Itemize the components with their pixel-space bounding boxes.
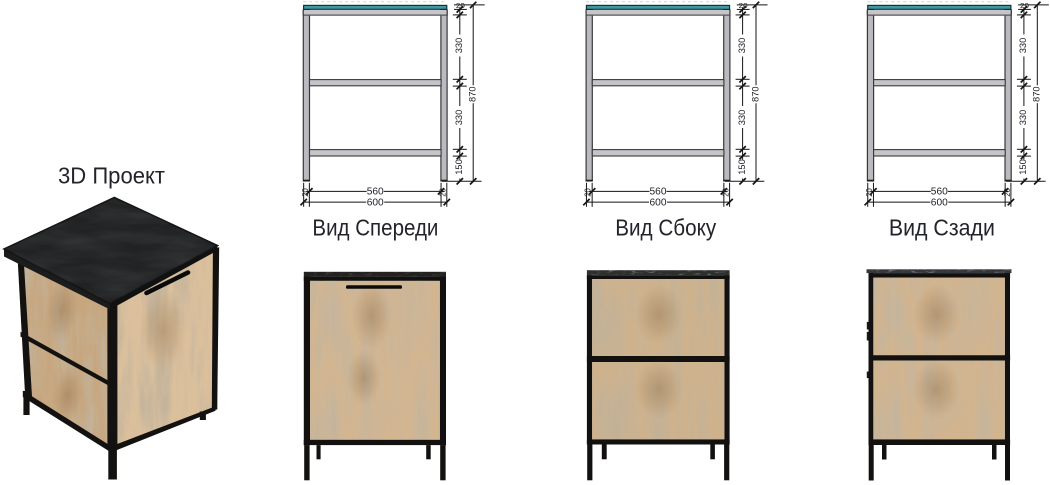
svg-text:Вид Сзади: Вид Сзади [889, 215, 995, 241]
svg-text:Вид Спереди: Вид Спереди [312, 215, 438, 241]
svg-text:3D Проект: 3D Проект [58, 163, 165, 189]
svg-text:Вид Сбоку: Вид Сбоку [615, 215, 716, 241]
